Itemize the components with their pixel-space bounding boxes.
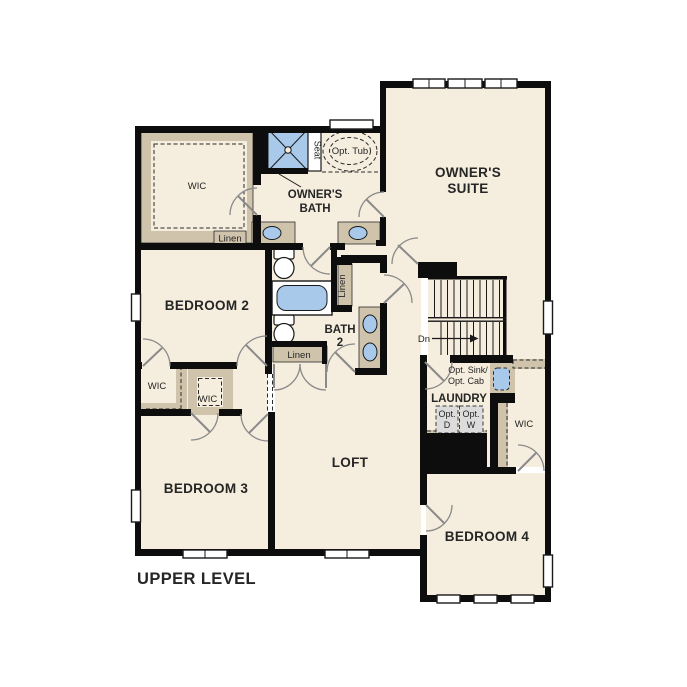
opt-sink-label-line1: Opt. Sink/ bbox=[448, 365, 488, 375]
stairs-dn-label: Dn bbox=[418, 334, 430, 345]
stairs-landing-line-2 bbox=[428, 321, 506, 322]
vanity-sink-left bbox=[263, 227, 281, 240]
wall-bedroom3-top-mid bbox=[219, 409, 242, 416]
window-bedroom3-left bbox=[132, 490, 141, 522]
bedroom2-wic-label: WIC bbox=[148, 381, 167, 392]
laundry-label: LAUNDRY bbox=[431, 393, 487, 405]
stair-landing-floor bbox=[507, 278, 545, 363]
bedroom2-label: BEDROOM 2 bbox=[165, 298, 249, 313]
window-bedroom4-right bbox=[544, 555, 553, 587]
opt-washer-label-line2: W bbox=[467, 420, 476, 430]
toilet-bath2 bbox=[274, 315, 294, 345]
wall-bath2-right-upper bbox=[380, 260, 387, 273]
toilet-owners-wc bbox=[274, 249, 294, 279]
owners-bath-label-line1: OWNER'S bbox=[288, 189, 343, 201]
bedroom3-label: BEDROOM 3 bbox=[164, 481, 249, 496]
bath2-label-line2: 2 bbox=[337, 337, 343, 349]
wall-laundry-left bbox=[420, 355, 427, 505]
opt-washer-label-line1: Opt. bbox=[462, 409, 479, 419]
wall-bath-linen-bottom bbox=[331, 305, 352, 312]
window-stair-landing bbox=[544, 301, 553, 334]
window-bedroom4-bottom-2 bbox=[474, 595, 497, 603]
wall-hall-linen-top bbox=[268, 341, 327, 347]
wall-stairs-top-edge bbox=[428, 276, 507, 280]
vanity-sink-right bbox=[349, 227, 367, 240]
opt-dryer-label-line1: Opt. bbox=[438, 409, 455, 419]
wall-right-exterior bbox=[545, 81, 551, 602]
bath2-tub bbox=[277, 286, 327, 311]
floorplan-canvas: OWNER'S SUITE OWNER'S BATH WIC Linen Opt… bbox=[0, 0, 687, 687]
wall-bedroom2-bottom bbox=[170, 362, 237, 369]
wall-bedroom2-bottom-corner bbox=[135, 362, 142, 369]
window-bedroom4-bottom-3 bbox=[511, 595, 534, 603]
bedroom4-wic-label: WIC bbox=[515, 419, 534, 430]
wall-wic-bath-lower bbox=[253, 215, 261, 243]
opt-tub-label: Opt. Tub bbox=[332, 146, 368, 157]
wall-suite-entry-notch bbox=[418, 262, 457, 278]
laundry-opt-sink bbox=[494, 368, 510, 390]
wall-suite-left-lower bbox=[380, 217, 386, 243]
loft-label: LOFT bbox=[332, 455, 369, 470]
wall-shower-left bbox=[261, 126, 268, 174]
wall-jog-corner bbox=[376, 240, 386, 246]
window-bedroom4-bottom-1 bbox=[437, 595, 460, 603]
bath2-label-line1: BATH bbox=[324, 324, 355, 336]
shower-seat-label: Seat bbox=[313, 141, 323, 160]
wall-bedroom4-top bbox=[421, 467, 516, 474]
loft-cased-opening bbox=[268, 374, 273, 412]
wall-bedroom4-left bbox=[420, 535, 427, 602]
opt-sink-label-line2: Opt. Cab bbox=[448, 376, 484, 386]
window-bedroom2 bbox=[132, 294, 141, 321]
owners-suite-label-line1: OWNER'S bbox=[435, 165, 501, 180]
wall-sink-nook-bottom bbox=[490, 393, 515, 403]
bedroom4-label: BEDROOM 4 bbox=[445, 529, 530, 544]
bath-linen-label: Linen bbox=[337, 274, 348, 297]
wall-shower-bottom bbox=[261, 168, 308, 174]
wall-bedroom2-right bbox=[265, 243, 272, 374]
hall-linen-label: Linen bbox=[287, 350, 310, 361]
wall-laundry-top bbox=[450, 355, 513, 363]
floorplan-drawing: OWNER'S SUITE OWNER'S BATH WIC Linen Opt… bbox=[0, 0, 687, 687]
wall-bedroom3-loft bbox=[268, 412, 275, 556]
wall-bedroom3-top-left bbox=[135, 409, 191, 416]
wall-suite-left-upper bbox=[380, 81, 386, 192]
wall-mass-chase bbox=[421, 433, 487, 470]
wall-laundry-wic-divider bbox=[490, 403, 498, 467]
bedroom3-wic-label: WIC bbox=[199, 394, 218, 405]
wall-bath2-right-lower bbox=[380, 303, 387, 375]
opt-dryer-label-line2: D bbox=[444, 420, 451, 430]
wall-hall-linen-right bbox=[322, 341, 327, 364]
shower-drain bbox=[285, 147, 291, 153]
wall-wic-bath-upper bbox=[253, 133, 261, 185]
owners-linen-label: Linen bbox=[218, 234, 241, 245]
wall-bottom bbox=[135, 549, 427, 556]
owners-suite-label-line2: SUITE bbox=[447, 181, 488, 196]
stairs-landing-line-1 bbox=[428, 317, 506, 318]
owners-wic-label: WIC bbox=[188, 181, 207, 192]
owners-bath-label-line2: BATH bbox=[299, 203, 330, 215]
bath2-sink-top bbox=[363, 315, 377, 333]
wall-bath-linen-top bbox=[331, 257, 352, 265]
plan-title: UPPER LEVEL bbox=[137, 570, 256, 588]
bath2-sink-bottom bbox=[363, 343, 377, 361]
window-opt-tub bbox=[330, 120, 373, 129]
wall-bath2-bottom bbox=[355, 368, 387, 375]
